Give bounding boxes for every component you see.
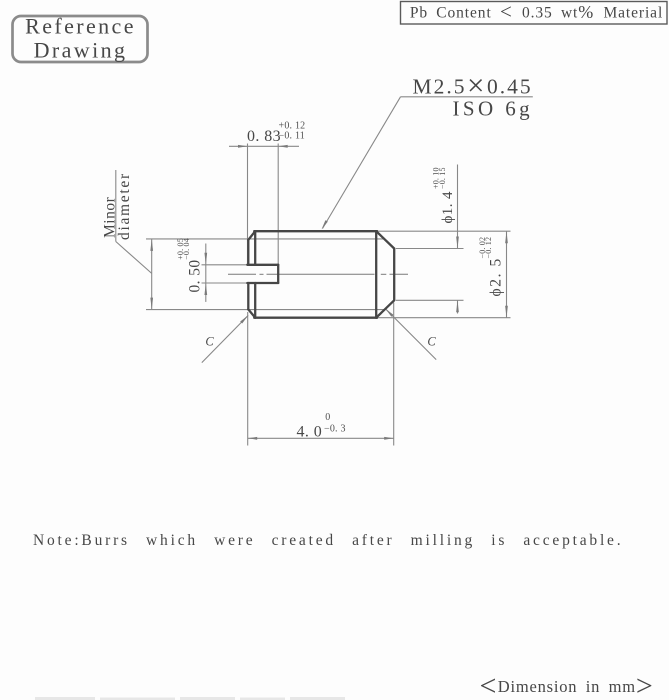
svg-text:4. 0: 4. 0	[297, 424, 323, 441]
svg-text:0. 83: 0. 83	[247, 128, 281, 145]
svg-text:−0. 11: −0. 11	[279, 130, 305, 141]
svg-text:ϕ1. 4: ϕ1. 4	[440, 191, 456, 223]
svg-text:ϕ2. 5: ϕ2. 5	[488, 257, 505, 296]
svg-text:<Dimension in mm>: <Dimension in mm>	[480, 670, 654, 700]
svg-text:0. 50: 0. 50	[187, 260, 204, 293]
svg-text:Pb Content < 0.35 wt% Material: Pb Content < 0.35 wt% Material	[410, 0, 663, 23]
svg-text:C: C	[205, 335, 214, 349]
svg-text:−0. 12: −0. 12	[484, 237, 493, 259]
svg-text:ISO 6g: ISO 6g	[453, 97, 534, 121]
svg-text:−0. 3: −0. 3	[324, 424, 346, 435]
svg-text:0: 0	[325, 412, 330, 423]
svg-text:Reference: Reference	[25, 14, 136, 39]
svg-text:Drawing: Drawing	[34, 38, 128, 63]
svg-text:C: C	[427, 335, 436, 349]
svg-text:diameter: diameter	[116, 172, 133, 240]
svg-text:−0. 04: −0. 04	[182, 238, 191, 260]
svg-text:Note:Burrs which were created: Note:Burrs which were created after mill…	[33, 532, 623, 549]
svg-text:−0. 15: −0. 15	[438, 167, 447, 189]
